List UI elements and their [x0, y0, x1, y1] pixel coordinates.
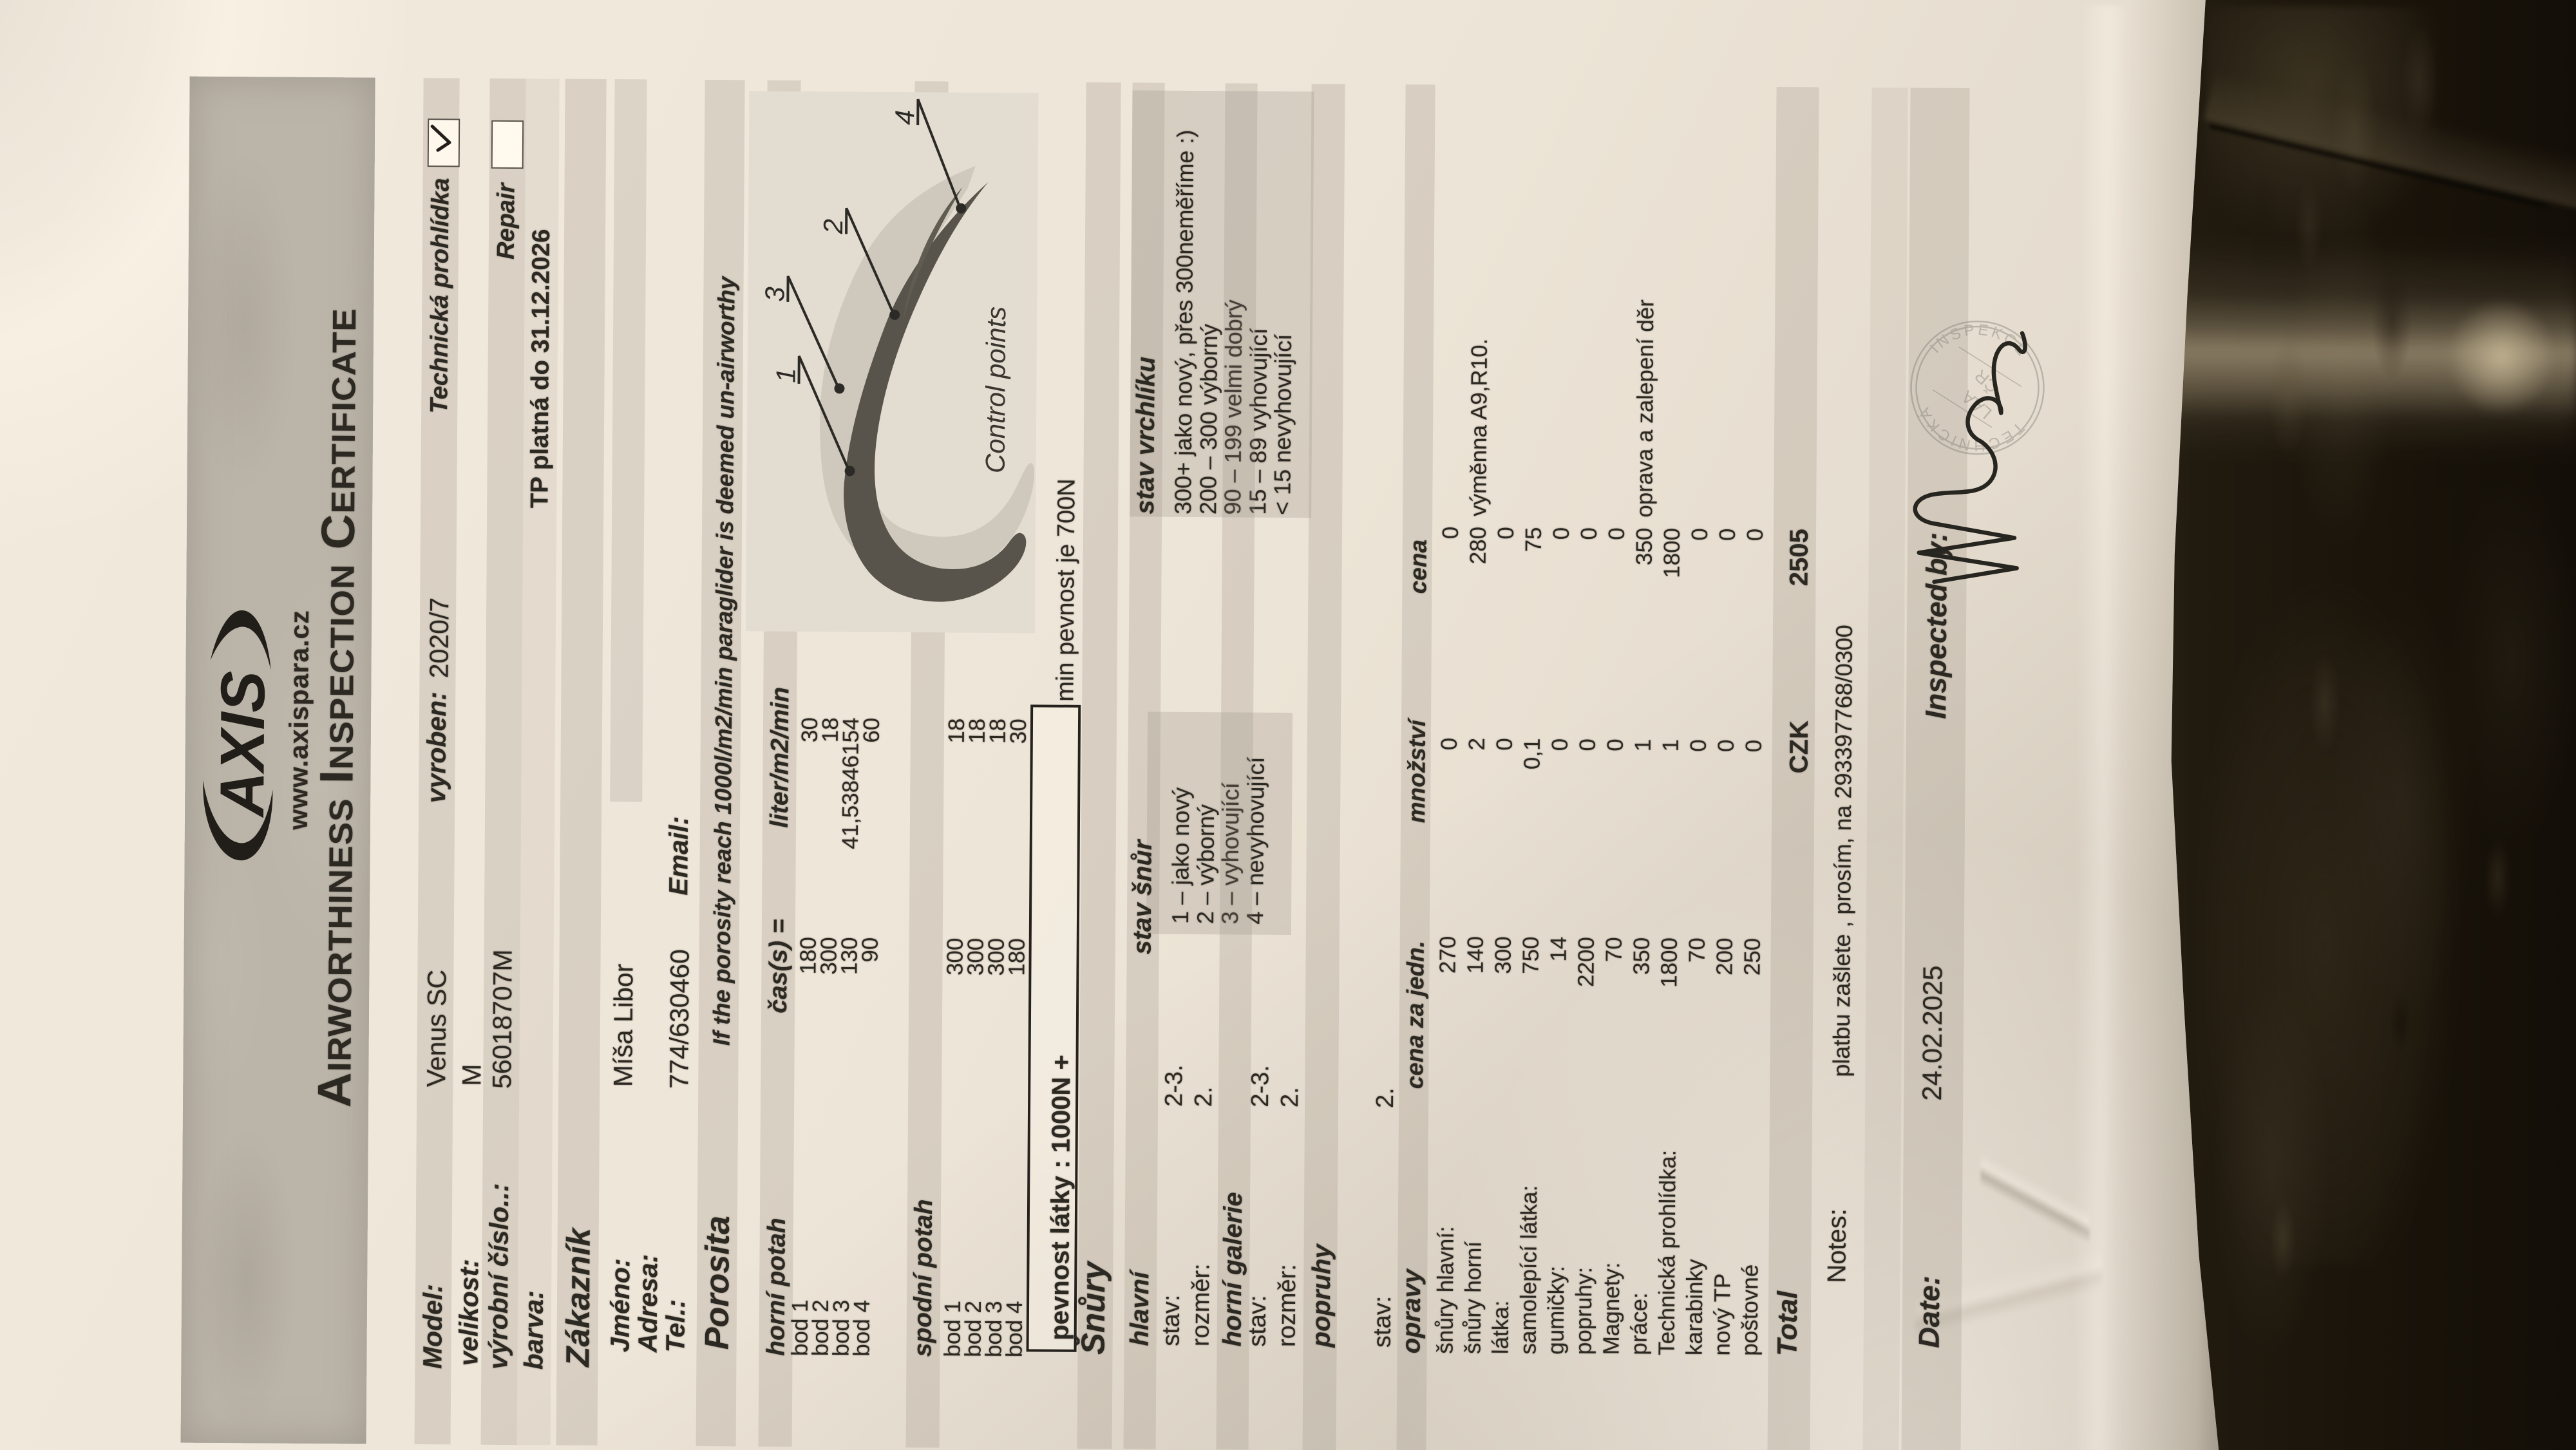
svg-text:1: 1: [771, 368, 801, 383]
svg-text:AXIS: AXIS: [207, 670, 278, 818]
svg-text:3: 3: [759, 287, 790, 302]
svg-text:2: 2: [818, 219, 848, 235]
svg-text:Control points: Control points: [980, 306, 1012, 473]
svg-text:4: 4: [889, 110, 920, 126]
